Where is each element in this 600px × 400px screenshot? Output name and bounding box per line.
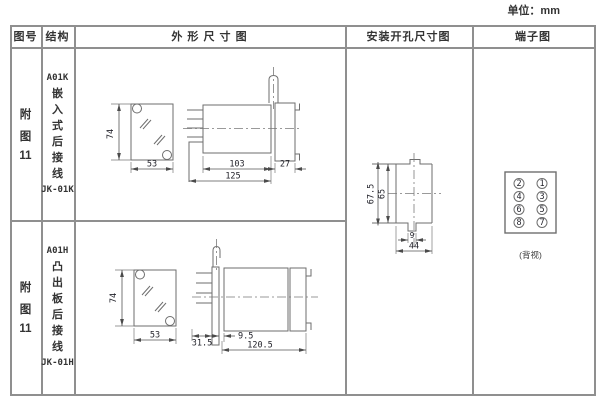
dim-total-depth: 125: [189, 172, 271, 182]
cutout-top-edge: [372, 160, 432, 165]
dim-label-panel-depth: 27: [280, 160, 290, 170]
dim-label-total-depth: 125: [225, 172, 240, 182]
terminal-number: 7: [539, 218, 544, 228]
relay-body: [224, 268, 288, 331]
rear-view-caption: (背视): [519, 250, 542, 260]
mounting-flange: [275, 103, 295, 161]
terminal-circles: 2 1 4 3 6 5 8 7: [514, 179, 547, 229]
terminal-pins: [187, 110, 203, 137]
relay-body: [203, 105, 271, 153]
hatch-mark: [155, 302, 166, 312]
terminal-number: 1: [539, 179, 544, 189]
mounting-screw-hole: [133, 104, 142, 113]
dim-projection-depth: 120.5: [222, 341, 306, 351]
terminal-number: 2: [516, 179, 521, 189]
dim-front-height: 74: [106, 104, 119, 160]
front-face-edge: [189, 142, 203, 182]
terminal-number: 4: [516, 192, 521, 202]
dim-label-behind-panel: 31.5: [192, 339, 212, 349]
flange-clips: [295, 104, 300, 161]
rear-cap: [290, 268, 306, 331]
dim-outer-height: 67.5: [367, 162, 379, 226]
relay-front-face: [134, 270, 176, 326]
dim-front-width: 53: [134, 331, 176, 341]
terminal-number: 6: [516, 205, 521, 215]
outline-drawing-jk01h: 74 53 31.5: [109, 239, 318, 354]
terminal-block-outline: [505, 172, 556, 233]
mounting-screw-hole: [136, 270, 145, 279]
hatch-mark: [154, 135, 165, 145]
dim-label-projection: 120.5: [247, 341, 273, 351]
outline-drawing-jk01k: 74 53 103: [106, 67, 306, 184]
dim-panel-depth: 27: [264, 160, 306, 170]
dim-label-width: 53: [147, 160, 157, 170]
dim-notch-width: 9: [398, 231, 426, 240]
front-view-jk01h: 74 53: [109, 270, 176, 344]
hatch-mark: [142, 286, 153, 296]
terminal-number: 5: [539, 205, 544, 215]
dim-label-cutout-height: 65: [378, 189, 388, 199]
dim-front-width: 53: [131, 160, 173, 170]
dim-label-notch-width: 9: [410, 231, 415, 240]
projecting-plate: [212, 267, 219, 345]
dim-label-height: 74: [106, 129, 116, 139]
datasheet-page: 单位：mm 图号 结构 外 形 尺 寸 图 安装开孔尺寸图 端子图 附 图 11…: [0, 0, 600, 400]
relay-front-face: [131, 104, 173, 160]
dim-cutout-width: 44: [396, 242, 432, 252]
technical-drawings: 74 53 103: [0, 0, 600, 400]
dim-label-width: 53: [150, 331, 160, 341]
dim-label-cutout-width: 44: [409, 242, 419, 252]
mounting-screw-hole: [163, 151, 172, 160]
dim-label-body-depth: 103: [229, 160, 244, 170]
dim-front-height: 74: [109, 270, 122, 326]
front-view-jk01k: 74 53: [106, 104, 173, 173]
dim-body-depth: 103: [203, 160, 271, 170]
side-view-jk01h: 31.5 9.5 120.5: [192, 239, 318, 354]
cutout-bottom-edge: [372, 223, 432, 231]
dim-label-outer-height: 67.5: [367, 184, 377, 204]
dim-behind-panel-depth: 31.5: [192, 336, 212, 349]
terminal-pins: [196, 273, 212, 303]
mounting-screw-hole: [166, 317, 175, 326]
cap-clips: [306, 269, 311, 330]
terminal-number: 3: [539, 192, 544, 202]
side-view-jk01k: 103 27 125: [183, 67, 306, 184]
mounting-hole-drawing: 67.5 65 9 44: [367, 153, 442, 254]
dim-label-height: 74: [109, 293, 119, 303]
dim-cutout-height: 65: [378, 164, 389, 223]
terminal-number: 8: [516, 218, 521, 228]
hatch-mark: [140, 119, 151, 129]
terminal-drawing: 2 1 4 3 6 5 8 7 (背视): [505, 172, 556, 260]
